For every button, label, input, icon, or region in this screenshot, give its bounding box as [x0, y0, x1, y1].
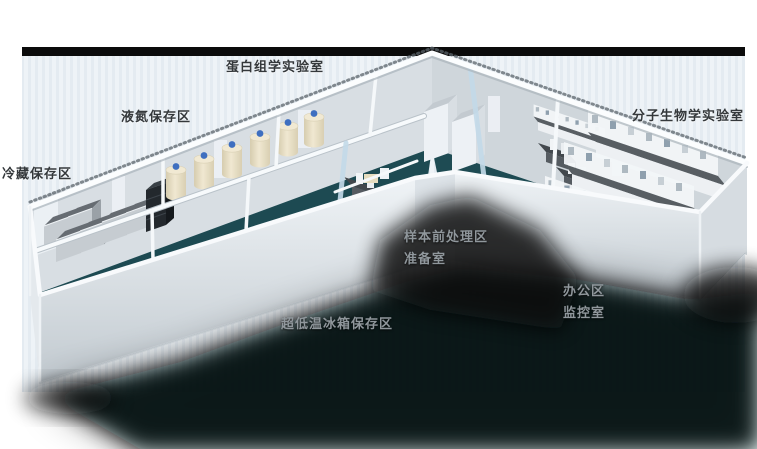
label-liquid-nitrogen-storage: 液氮保存区	[121, 111, 191, 124]
label-ult-freezer-storage: 超低温冰箱保存区	[281, 318, 393, 331]
label-office-area: 办公区	[563, 285, 605, 298]
label-sample-pretreatment: 样本前处理区	[404, 231, 488, 244]
floorplan-render	[0, 0, 757, 449]
backdrop-top-bar	[22, 47, 745, 56]
floorplan-stage: 蛋白组学实验室 液氮保存区 冷藏保存区 分子生物学实验室 样本前处理区 准备室 …	[0, 0, 757, 449]
label-preparation-room: 准备室	[404, 253, 446, 266]
label-cold-storage: 冷藏保存区	[2, 168, 72, 181]
label-monitoring-room: 监控室	[563, 307, 605, 320]
label-molecular-biology-lab: 分子生物学实验室	[632, 110, 744, 123]
label-proteomics-lab: 蛋白组学实验室	[226, 61, 324, 74]
